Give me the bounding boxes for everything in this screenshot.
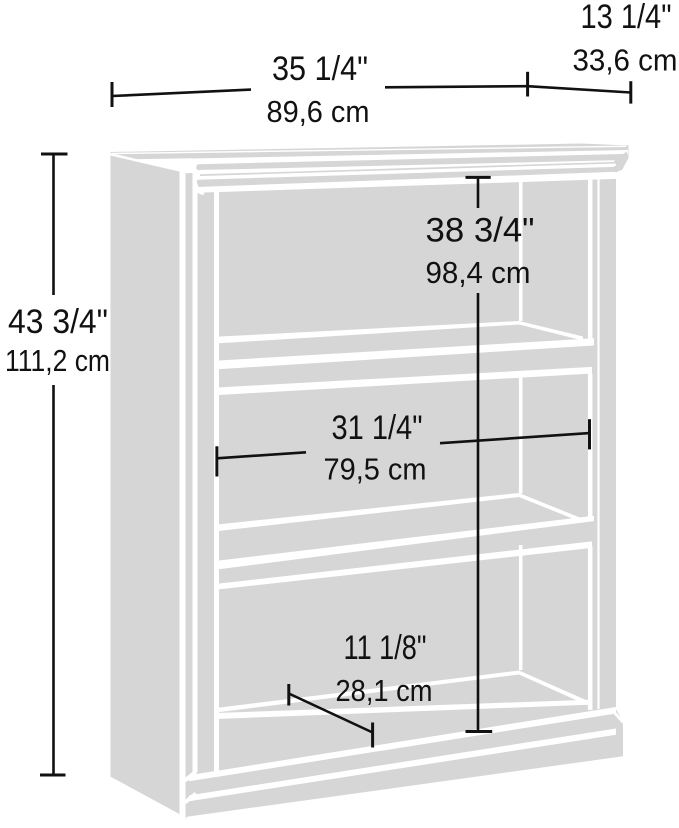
svg-text:43 3/4": 43 3/4"	[8, 303, 108, 341]
svg-text:13 1/4": 13 1/4"	[581, 0, 672, 36]
svg-text:31 1/4": 31 1/4"	[332, 409, 423, 447]
svg-text:35 1/4": 35 1/4"	[272, 50, 368, 88]
svg-text:33,6 cm: 33,6 cm	[573, 43, 678, 78]
svg-text:38 3/4": 38 3/4"	[426, 212, 535, 250]
svg-text:79,5 cm: 79,5 cm	[324, 452, 427, 487]
svg-text:89,6 cm: 89,6 cm	[267, 94, 370, 129]
svg-text:28,1 cm: 28,1 cm	[336, 673, 433, 708]
svg-text:11 1/8": 11 1/8"	[344, 629, 427, 667]
svg-text:111,2 cm: 111,2 cm	[5, 343, 110, 378]
svg-text:98,4 cm: 98,4 cm	[426, 255, 531, 290]
